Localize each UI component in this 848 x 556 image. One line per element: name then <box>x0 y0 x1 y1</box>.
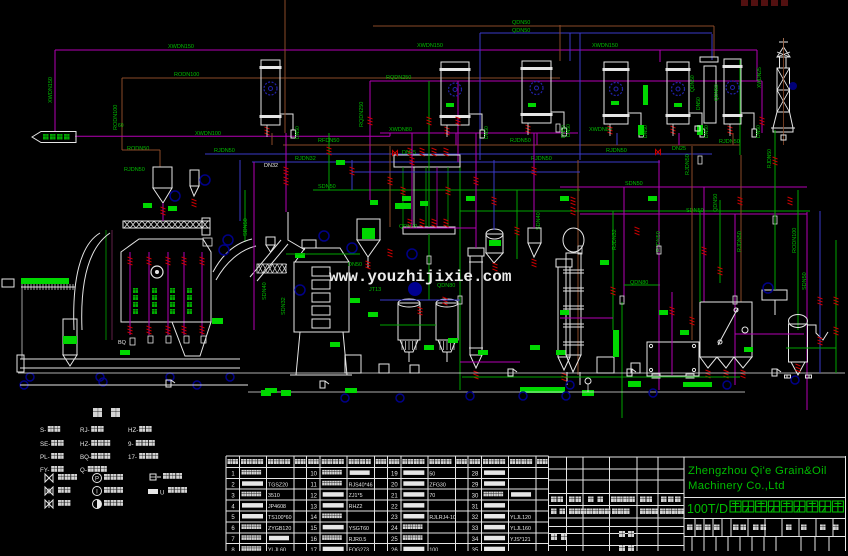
svg-text:DN25: DN25 <box>402 150 416 156</box>
svg-text:ZJ1*5: ZJ1*5 <box>349 493 363 499</box>
svg-text:DN50: DN50 <box>756 125 762 138</box>
svg-text:24: 24 <box>391 526 398 532</box>
svg-text:31: 31 <box>472 504 479 510</box>
svg-text:RJLRJ4-10: RJLRJ4-10 <box>429 515 456 521</box>
svg-text:21: 21 <box>391 493 398 499</box>
svg-text:RJDN50: RJDN50 <box>124 167 145 173</box>
svg-text:P: P <box>95 477 99 483</box>
svg-text:ZFG30: ZFG30 <box>429 482 446 488</box>
svg-text:XWDN25: XWDN25 <box>757 67 763 88</box>
svg-text:RQDN250: RQDN250 <box>386 75 411 81</box>
svg-text:DN25: DN25 <box>672 146 686 152</box>
svg-text:28: 28 <box>472 472 479 478</box>
svg-text:32: 32 <box>472 515 479 521</box>
svg-text:RHZ2: RHZ2 <box>349 504 363 510</box>
svg-text:QDN80: QDN80 <box>630 280 648 286</box>
svg-text:70: 70 <box>429 493 435 499</box>
svg-text:20: 20 <box>391 483 398 489</box>
svg-text:RJR0.5: RJR0.5 <box>349 537 367 543</box>
svg-text:29: 29 <box>472 483 479 489</box>
svg-text:RODN50: RODN50 <box>127 146 149 152</box>
svg-text:16: 16 <box>310 537 317 543</box>
svg-text:30: 30 <box>472 493 479 499</box>
svg-text:BQ-: BQ- <box>80 454 91 461</box>
svg-text:33: 33 <box>472 526 479 532</box>
svg-text:ZYGB120: ZYGB120 <box>268 526 291 532</box>
svg-text:SDN50: SDN50 <box>243 218 249 236</box>
svg-text:34: 34 <box>472 537 479 543</box>
svg-text:100T/D: 100T/D <box>687 502 728 516</box>
svg-text:SDN40: SDN40 <box>536 212 542 230</box>
svg-text:DN50: DN50 <box>484 126 490 139</box>
svg-text:XWDN80: XWDN80 <box>389 127 412 133</box>
svg-text:RJDN32: RJDN32 <box>295 156 316 162</box>
svg-text:25: 25 <box>391 537 398 543</box>
svg-text:JP4608: JP4608 <box>268 504 286 510</box>
svg-text:Zhengzhou Qi'e Grain&Oil: Zhengzhou Qi'e Grain&Oil <box>688 465 827 477</box>
svg-text:XWDN150: XWDN150 <box>417 43 443 49</box>
svg-text:RQDN250: RQDN250 <box>359 102 365 127</box>
svg-text:HZ-: HZ- <box>128 427 138 434</box>
svg-text:DN50: DN50 <box>696 97 702 110</box>
svg-text:RJ-: RJ- <box>80 427 90 434</box>
svg-text:Machinery Co.,Ltd: Machinery Co.,Ltd <box>688 480 785 492</box>
svg-text:QDN50: QDN50 <box>512 28 530 34</box>
svg-text:XWDN100: XWDN100 <box>195 131 221 137</box>
svg-text:13: 13 <box>310 504 317 510</box>
svg-text:9-: 9- <box>128 441 134 448</box>
svg-text:QDN50: QDN50 <box>690 75 696 92</box>
svg-text:RJDN50: RJDN50 <box>737 231 743 252</box>
svg-text:22: 22 <box>391 504 398 510</box>
svg-text:www.youzhijixie.com: www.youzhijixie.com <box>329 268 512 286</box>
svg-text:QDN50: QDN50 <box>512 20 530 26</box>
svg-text:QDN50: QDN50 <box>714 84 720 101</box>
svg-text:DN32: DN32 <box>264 163 278 169</box>
svg-text:QDN80: QDN80 <box>437 283 455 289</box>
svg-text:RODN100: RODN100 <box>174 72 199 78</box>
svg-text:YLJL120: YLJL120 <box>510 515 531 521</box>
svg-text:S-: S- <box>40 427 46 434</box>
svg-text:14: 14 <box>310 515 317 521</box>
svg-text:FY-: FY- <box>40 467 49 474</box>
svg-text:TGSZ20: TGSZ20 <box>268 482 288 488</box>
svg-text:DN50: DN50 <box>561 125 567 138</box>
svg-text:15: 15 <box>310 526 317 532</box>
svg-text:SDN40: SDN40 <box>262 282 268 300</box>
svg-text:RJDN50: RJDN50 <box>510 138 531 144</box>
svg-text:SE-: SE- <box>40 441 50 448</box>
svg-text:RJDN50: RJDN50 <box>685 154 691 175</box>
svg-text:RJS40*46: RJS40*46 <box>349 482 373 488</box>
svg-text:RJDN50: RJDN50 <box>606 148 627 154</box>
svg-text:3510: 3510 <box>268 493 280 499</box>
svg-text:YSGT60: YSGT60 <box>349 526 369 532</box>
svg-text:QDN50: QDN50 <box>713 194 719 212</box>
svg-text:HZ-: HZ- <box>80 441 90 448</box>
svg-text:SDN50: SDN50 <box>318 184 336 190</box>
svg-text:60: 60 <box>118 123 124 129</box>
svg-text:SDN50: SDN50 <box>802 272 808 290</box>
svg-text:RJDN50: RJDN50 <box>767 149 773 168</box>
svg-text:U: U <box>160 491 164 497</box>
svg-text:12: 12 <box>310 493 317 499</box>
svg-text:SDN50: SDN50 <box>625 181 643 187</box>
svg-text:YJS*121: YJS*121 <box>510 537 531 543</box>
svg-text:XWDN150: XWDN150 <box>592 43 618 49</box>
svg-text:10: 10 <box>310 472 317 478</box>
svg-text:Q-: Q- <box>80 467 87 474</box>
svg-text:DN50: DN50 <box>348 262 362 268</box>
svg-text:YLJL160: YLJL160 <box>510 526 531 532</box>
svg-text:19: 19 <box>391 472 398 478</box>
svg-text:DN50: DN50 <box>704 125 710 138</box>
svg-text:RJDN50: RJDN50 <box>719 139 740 145</box>
svg-text:17-: 17- <box>128 454 137 461</box>
svg-text:50: 50 <box>429 471 435 477</box>
svg-text:JT13: JT13 <box>369 287 381 293</box>
svg-text:23: 23 <box>391 515 398 521</box>
svg-text:QDN90: QDN90 <box>399 224 417 230</box>
svg-text:RODN100: RODN100 <box>792 228 798 253</box>
svg-text:DN50: DN50 <box>295 126 301 139</box>
svg-text:PL-: PL- <box>40 454 50 461</box>
svg-text:XWDN150: XWDN150 <box>168 44 194 50</box>
svg-text:RJDN50: RJDN50 <box>214 148 235 154</box>
svg-text:11: 11 <box>311 483 318 489</box>
svg-text:SDN32: SDN32 <box>281 297 287 315</box>
svg-text:XWDN150: XWDN150 <box>48 77 54 103</box>
svg-text:BQ: BQ <box>118 340 127 346</box>
svg-text:TS100*60: TS100*60 <box>268 515 292 521</box>
